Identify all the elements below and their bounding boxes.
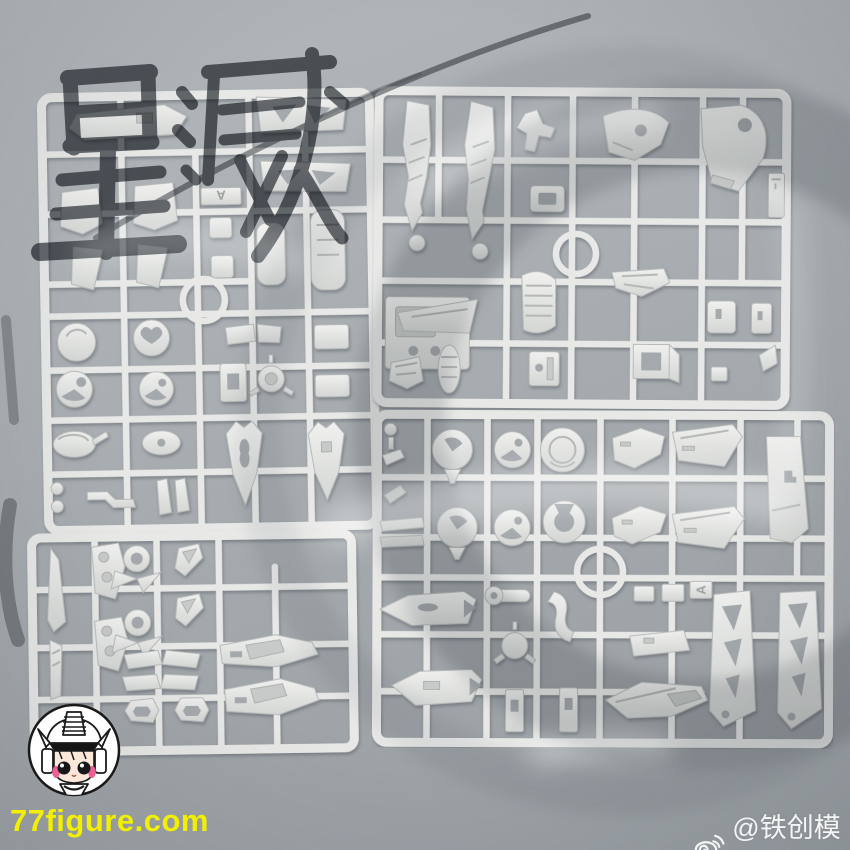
weibo-watermark: @铁创模型	[694, 806, 850, 850]
sprue-letter: A	[693, 585, 708, 595]
weibo-icon	[694, 830, 725, 850]
photo-model-kit-sprues: A	[0, 0, 850, 850]
runner-ring	[556, 234, 596, 274]
calligraphy-text-label: 星灭	[0, 0, 1, 1]
weibo-handle: @铁创模型	[732, 806, 850, 850]
sprue-bottom-right: A	[371, 409, 834, 749]
sprue-label-tab: A	[201, 187, 241, 205]
sprue-label-tab: A	[690, 581, 712, 598]
mascot-badge	[26, 702, 122, 798]
sprue-top-right	[371, 85, 795, 414]
sprue-top-left: A	[24, 79, 382, 540]
sprue-letter: A	[216, 188, 226, 203]
site-url-watermark: 77figure.com	[10, 803, 209, 839]
molded-parts	[385, 101, 785, 396]
